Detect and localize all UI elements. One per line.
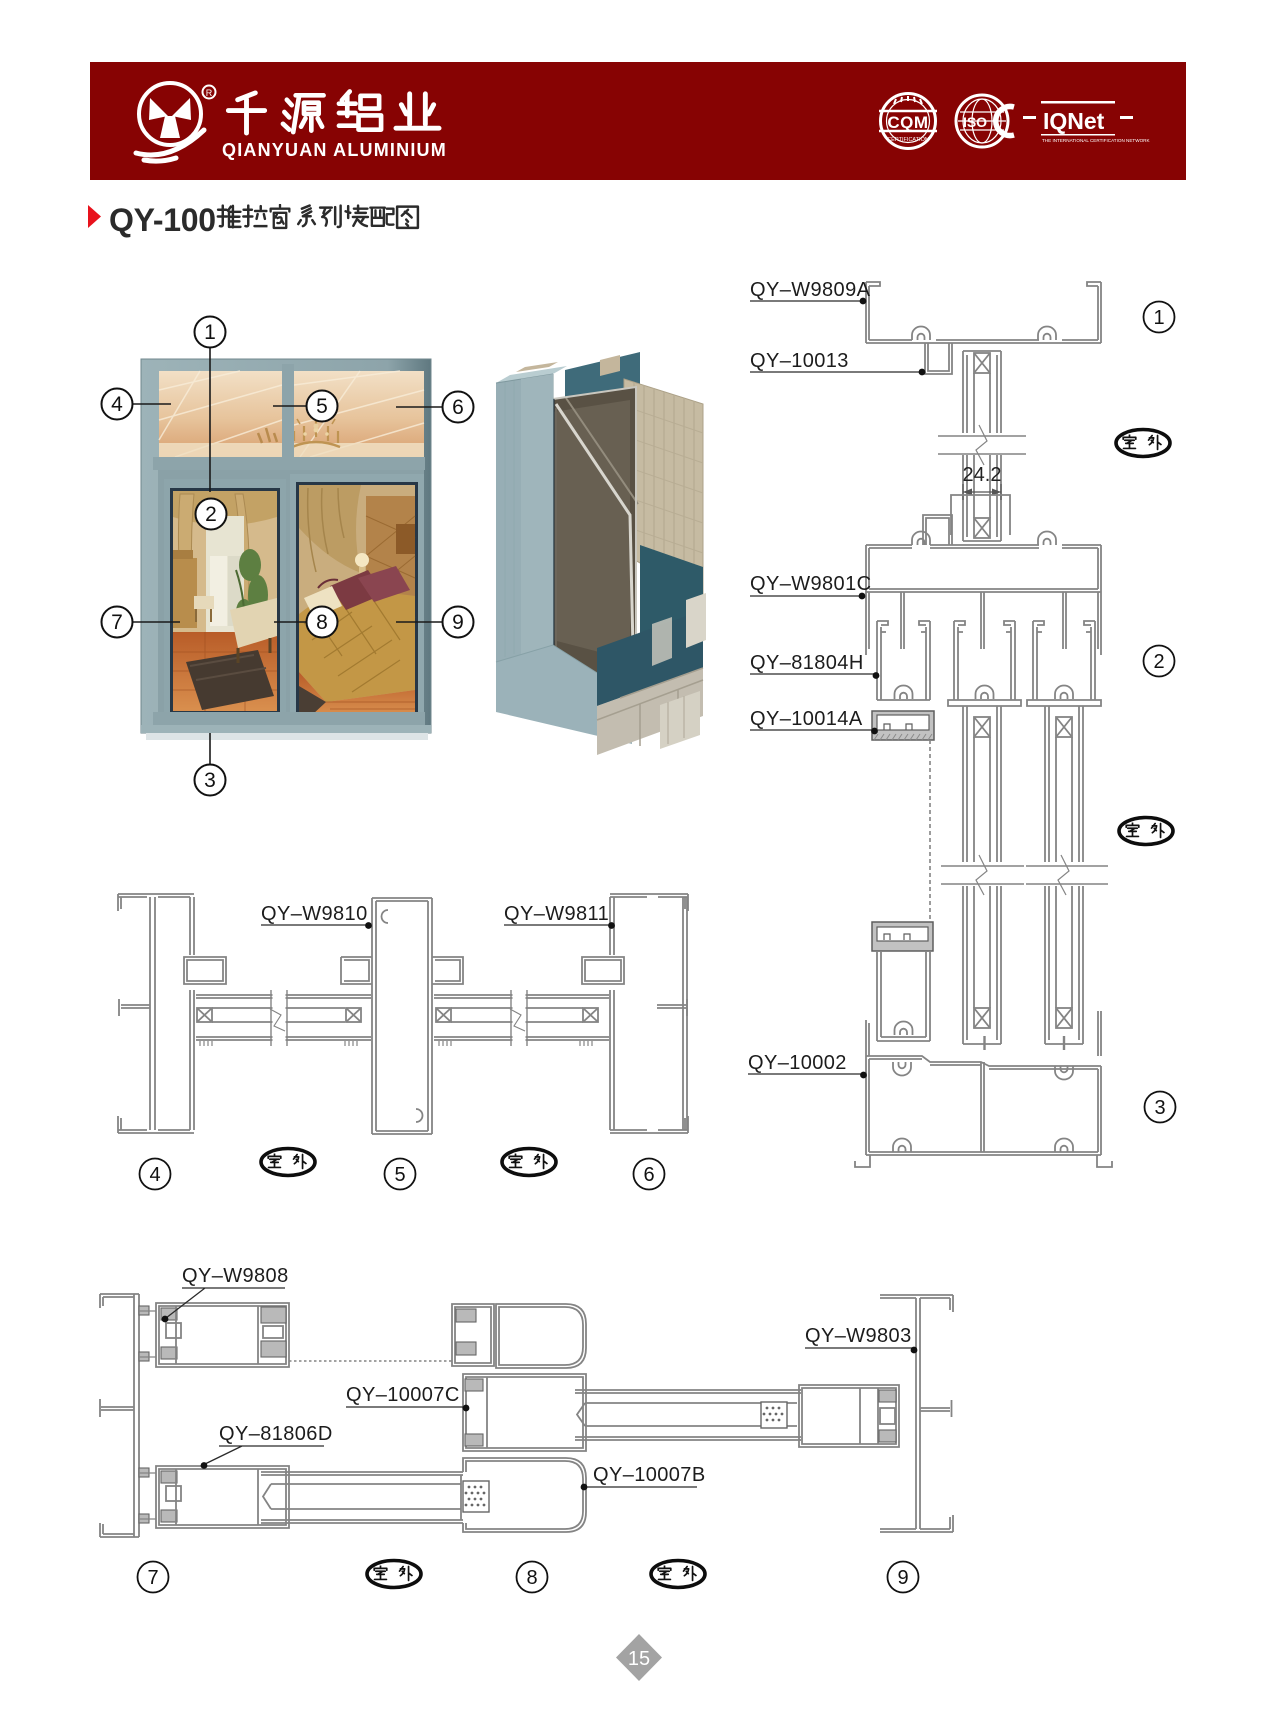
svg-text:15: 15	[628, 1648, 650, 1670]
svg-text:CQM: CQM	[887, 113, 928, 132]
svg-text:QY–10007C: QY–10007C	[346, 1384, 460, 1406]
svg-text:5: 5	[316, 395, 328, 418]
svg-text:CERTIFICATION: CERTIFICATION	[887, 137, 929, 143]
svg-text:4: 4	[149, 1164, 160, 1186]
svg-text:QY–W9810: QY–W9810	[261, 903, 368, 925]
svg-text:QY–81806D: QY–81806D	[219, 1423, 333, 1445]
svg-text:9: 9	[897, 1567, 908, 1589]
svg-text:QY-100: QY-100	[109, 202, 216, 238]
svg-text:6: 6	[452, 396, 464, 419]
svg-text:ISO: ISO	[963, 114, 987, 130]
svg-text:3: 3	[204, 769, 216, 792]
svg-text:THE INTERNATIONAL CERTIFICATIO: THE INTERNATIONAL CERTIFICATION NETWORK	[1042, 138, 1150, 143]
svg-text:7: 7	[111, 611, 123, 634]
svg-text:6: 6	[643, 1164, 654, 1186]
svg-text:3: 3	[1154, 1097, 1165, 1119]
svg-text:R: R	[206, 88, 213, 98]
svg-text:1: 1	[204, 321, 216, 344]
svg-text:QY–10013: QY–10013	[750, 350, 849, 372]
svg-text:QY–W9801C: QY–W9801C	[750, 573, 871, 595]
svg-text:8: 8	[316, 611, 328, 634]
svg-text:24.2: 24.2	[963, 464, 1002, 486]
svg-text:QIANYUAN ALUMINIUM: QIANYUAN ALUMINIUM	[222, 140, 447, 160]
svg-text:4: 4	[111, 393, 123, 416]
svg-text:7: 7	[147, 1567, 158, 1589]
svg-text:QY–W9809A: QY–W9809A	[750, 279, 871, 301]
svg-text:QY–10002: QY–10002	[748, 1052, 847, 1074]
svg-text:QY–10007B: QY–10007B	[593, 1464, 706, 1486]
svg-text:QY–W9808: QY–W9808	[182, 1265, 289, 1287]
svg-text:8: 8	[526, 1567, 537, 1589]
svg-text:9: 9	[452, 611, 464, 634]
svg-text:QY–81804H: QY–81804H	[750, 652, 864, 674]
svg-text:QY–W9811: QY–W9811	[504, 903, 609, 925]
svg-text:2: 2	[205, 503, 217, 526]
svg-text:IQNet: IQNet	[1043, 108, 1105, 134]
svg-text:5: 5	[394, 1164, 405, 1186]
svg-text:1: 1	[1153, 307, 1164, 329]
svg-text:2: 2	[1153, 651, 1164, 673]
svg-text:QY–W9803: QY–W9803	[805, 1325, 912, 1347]
svg-text:QY–10014A: QY–10014A	[750, 708, 863, 730]
